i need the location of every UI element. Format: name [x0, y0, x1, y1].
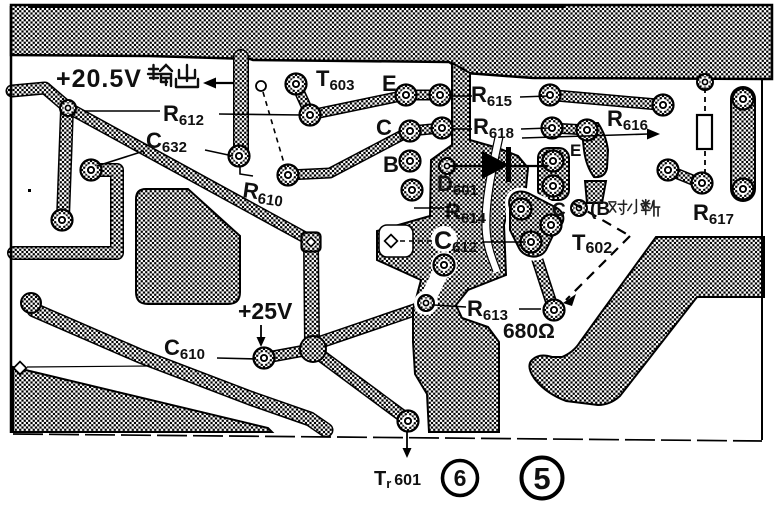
svg-text:+20.5V: +20.5V — [56, 65, 142, 93]
svg-text:B: B — [383, 152, 399, 177]
svg-text:C: C — [376, 115, 392, 140]
svg-text:6: 6 — [454, 465, 467, 491]
svg-text:Tr601: Tr601 — [374, 468, 421, 491]
svg-text:E: E — [382, 71, 397, 96]
svg-text:(B: (B — [590, 199, 610, 220]
svg-text:5: 5 — [533, 461, 550, 496]
svg-text:E: E — [570, 141, 581, 160]
svg-text:+25V: +25V — [238, 298, 293, 324]
svg-text:680Ω: 680Ω — [503, 320, 555, 343]
svg-text:C: C — [552, 200, 566, 221]
